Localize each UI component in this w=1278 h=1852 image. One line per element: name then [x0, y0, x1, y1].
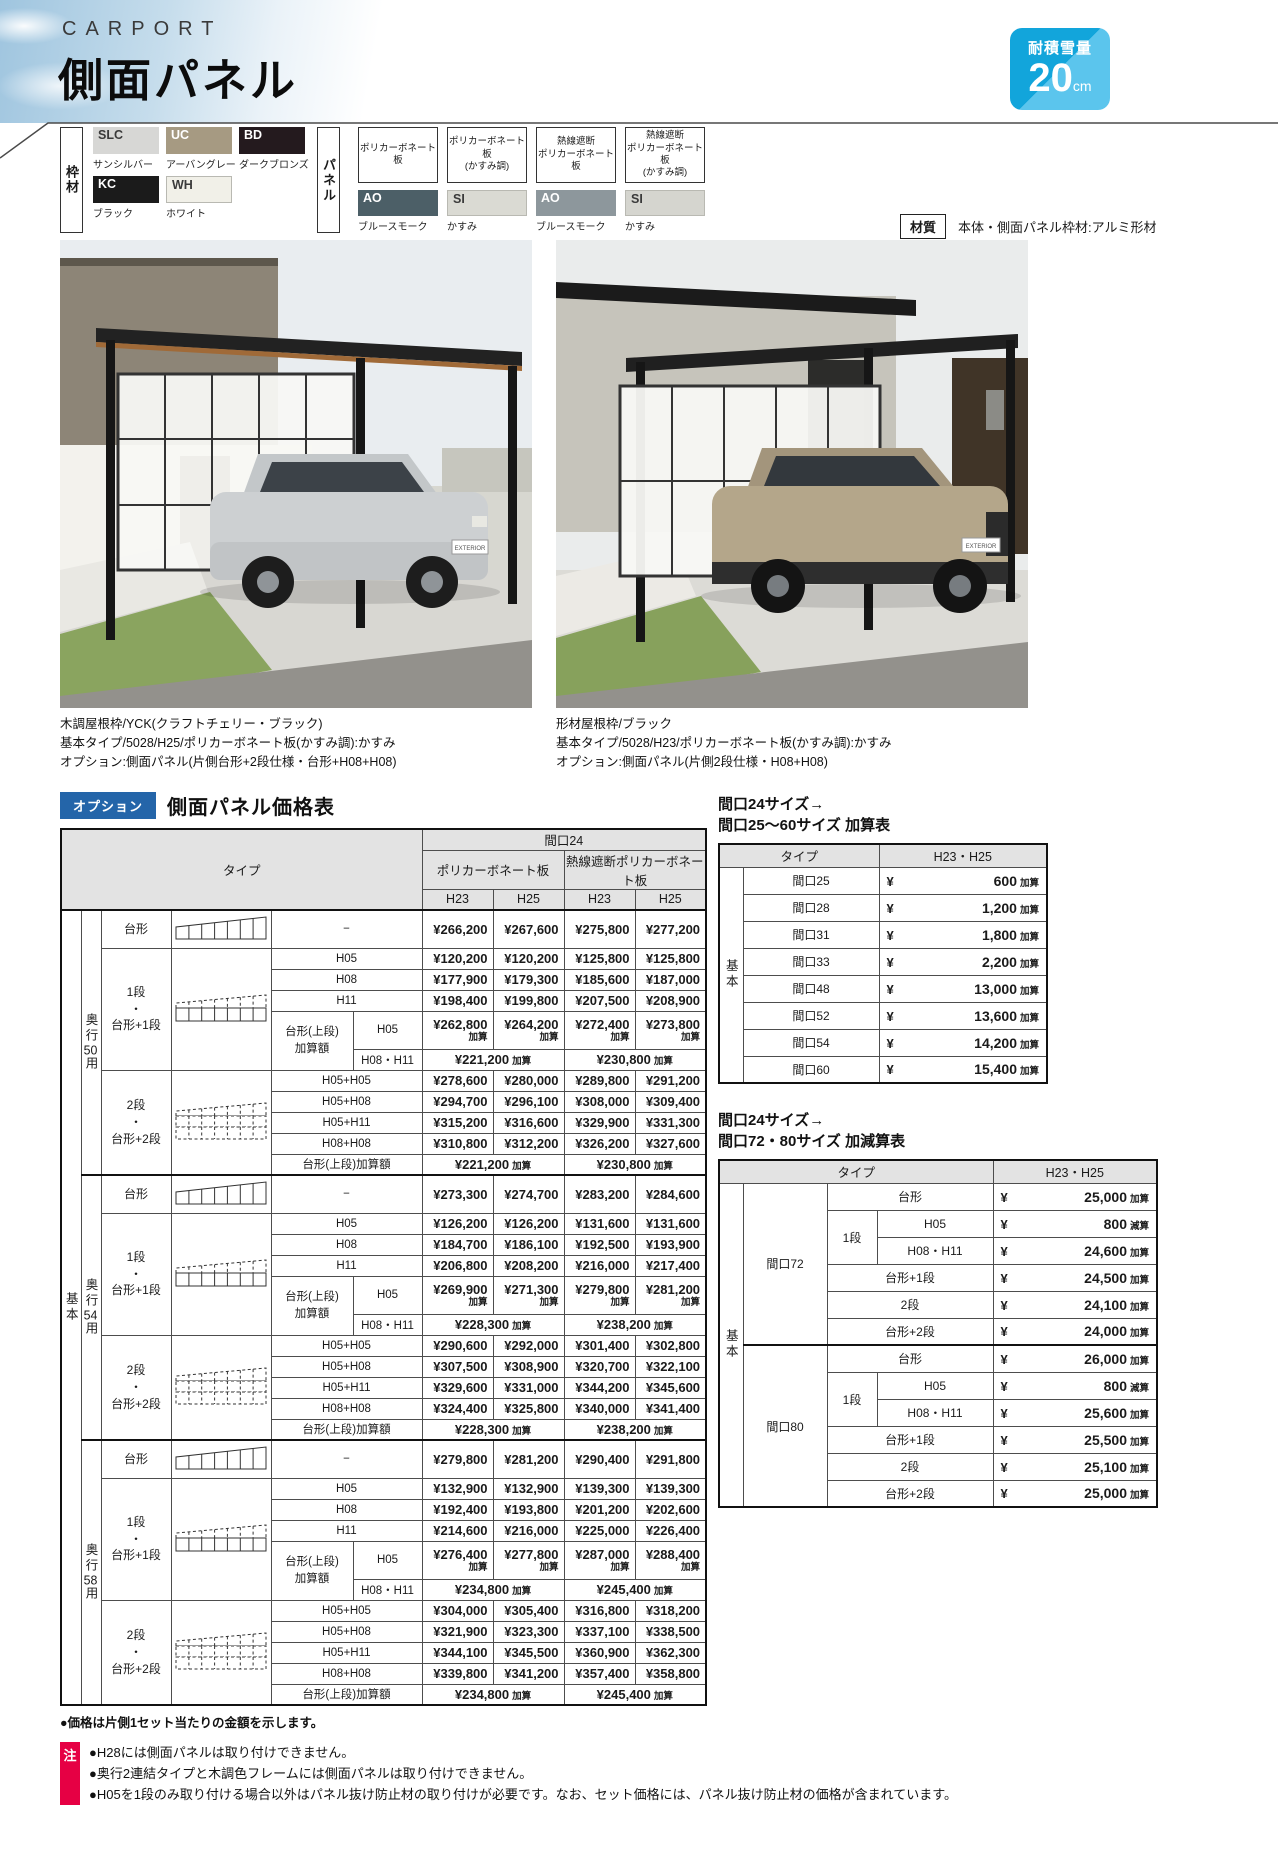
adjust-amount: 1,800: [894, 927, 1017, 943]
width-label: 間口52: [743, 1002, 879, 1029]
price-cell: ¥192,500: [564, 1234, 635, 1255]
price-cell: ¥290,600: [422, 1335, 493, 1356]
price-row: 2段 ・ 台形+2段H05+H05¥304,000¥305,400¥316,80…: [61, 1600, 706, 1621]
price-cell: ¥225,000: [564, 1520, 635, 1541]
price-cell: ¥338,500: [635, 1621, 706, 1642]
width-span-label: 間口72: [743, 1183, 827, 1345]
frame-swatch: SLCサンシルバー: [93, 127, 159, 171]
adjust-value-inner: ¥1,800加算: [887, 927, 1040, 943]
add-suffix: 加算: [636, 1563, 701, 1573]
price-cell: ¥186,100: [493, 1234, 564, 1255]
adjust-value: ¥14,200加算: [879, 1029, 1047, 1056]
swatch-name: アーバングレー: [166, 156, 232, 171]
swatch-name: ダークブロンズ: [239, 156, 305, 171]
adjust-value-inner: ¥13,000加算: [887, 981, 1040, 997]
price-cell: ¥120,200: [493, 948, 564, 969]
price-cell: ¥327,600: [635, 1133, 706, 1154]
panel-diagram-dan2-icon: [175, 1364, 267, 1406]
adjust-value: ¥15,400加算: [879, 1056, 1047, 1083]
height-label: H08・H11: [877, 1237, 993, 1264]
price-cell: ¥179,300: [493, 969, 564, 990]
height-spec-label: H05: [271, 1478, 422, 1499]
adjust-value: ¥25,500加算: [993, 1426, 1157, 1453]
vertical-label: 奥行50用: [81, 910, 101, 1175]
step-label: 1段: [827, 1372, 877, 1426]
yen-symbol: ¥: [1001, 1379, 1008, 1394]
height-spec-label: H05+H05: [271, 1600, 422, 1621]
adjust-value-inner: ¥25,000加算: [1001, 1485, 1150, 1501]
adjust-suffix: 減算: [1130, 1380, 1149, 1394]
yen-symbol: ¥: [1001, 1298, 1008, 1313]
adjust-suffix: 加算: [1130, 1272, 1149, 1286]
price-cell: ¥288,400加算: [635, 1541, 706, 1579]
height-spec-label: H11: [271, 1255, 422, 1276]
price-cell: ¥318,200: [635, 1600, 706, 1621]
type-label: 2段 ・ 台形+2段: [101, 1335, 171, 1440]
price-value: ¥262,800: [423, 1017, 488, 1033]
adjust-amount: 1,200: [894, 900, 1017, 916]
adjust-value-inner: ¥24,000加算: [1001, 1323, 1150, 1339]
panel-diagram-taikei-icon: [175, 914, 267, 940]
caption-line: オプション:側面パネル(片側2段仕様・H08+H08): [556, 753, 1028, 772]
height-spec-label: −: [271, 1440, 422, 1478]
panel-diagram-dan1-icon: [175, 991, 267, 1023]
frame-swatch: KCブラック: [93, 176, 159, 220]
price-cell: ¥217,400: [635, 1255, 706, 1276]
adjust-amount: 26,000: [1008, 1351, 1127, 1367]
color-chip: SI: [625, 190, 705, 216]
adjust-value-inner: ¥25,000加算: [1001, 1189, 1150, 1205]
height-spec-label: −: [271, 1175, 422, 1213]
price-cell: ¥291,800: [635, 1440, 706, 1478]
panel-type: 熱線遮断 ポリカーボネート板AOブルースモーク: [536, 127, 616, 233]
width-label: 間口60: [743, 1056, 879, 1083]
price-cell: ¥132,900: [493, 1478, 564, 1499]
add-suffix: 加算: [512, 1056, 531, 1067]
type-header: タイプ: [719, 1160, 993, 1183]
add-suffix: 加算: [636, 1033, 701, 1043]
adjust-value: ¥24,500加算: [993, 1264, 1157, 1291]
side-table-a-body: 基本間口25¥600加算間口28¥1,200加算間口31¥1,800加算間口33…: [719, 867, 1047, 1083]
add-suffix: 加算: [565, 1298, 630, 1308]
height-label: H05: [877, 1372, 993, 1399]
adjust-value-inner: ¥24,600加算: [1001, 1243, 1150, 1259]
category-label: CARPORT: [62, 18, 222, 41]
price-cell: ¥296,100: [493, 1091, 564, 1112]
swatch-name: ホワイト: [166, 205, 232, 220]
vertical-label: 奥行54用: [81, 1175, 101, 1440]
panel-type-label: 熱線遮断 ポリカーボネート板 (かすみ調): [625, 127, 705, 183]
height-label: H05: [877, 1210, 993, 1237]
yen-symbol: ¥: [1001, 1244, 1008, 1259]
adjust-amount: 25,000: [1008, 1485, 1127, 1501]
add-suffix: 加算: [512, 1161, 531, 1172]
adjust-suffix: 加算: [1020, 1063, 1039, 1077]
height-spec-label: 台形(上段)加算額: [271, 1419, 422, 1440]
price-cell: ¥279,800加算: [564, 1276, 635, 1314]
yen-symbol: ¥: [887, 1036, 894, 1051]
panel-type-label: ポリカーボネート板: [358, 127, 438, 183]
addition-row: 間口31¥1,800加算: [719, 921, 1047, 948]
price-value: ¥288,400: [636, 1547, 701, 1563]
price-cell: ¥269,900加算: [422, 1276, 493, 1314]
width-label: 間口54: [743, 1029, 879, 1056]
height-spec-label: H05: [353, 1541, 422, 1579]
height-spec-label: H05+H11: [271, 1642, 422, 1663]
adjust-amount: 24,000: [1008, 1323, 1127, 1339]
price-value: ¥221,200: [455, 1157, 509, 1172]
height-col-header: H23: [564, 889, 635, 910]
price-cell: ¥184,700: [422, 1234, 493, 1255]
adjust-value: ¥1,200加算: [879, 894, 1047, 921]
height-spec-label: H05+H08: [271, 1091, 422, 1112]
vertical-label: 奥行58用: [81, 1440, 101, 1705]
price-row: 2段 ・ 台形+2段H05+H05¥290,600¥292,000¥301,40…: [61, 1335, 706, 1356]
addition-row: 間口54¥14,200加算: [719, 1029, 1047, 1056]
add-amount-label: 台形(上段) 加算額: [271, 1276, 353, 1335]
add-amount-label: 台形(上段) 加算額: [271, 1011, 353, 1070]
type-label: 台形: [101, 1440, 171, 1478]
adjust-value: ¥13,000加算: [879, 975, 1047, 1002]
price-table-titlebar: オプション 側面パネル価格表: [60, 791, 335, 820]
height-spec-label: H05: [353, 1276, 422, 1314]
price-cell: ¥199,800: [493, 990, 564, 1011]
adjust-value-inner: ¥25,500加算: [1001, 1432, 1150, 1448]
price-cell: ¥126,200: [493, 1213, 564, 1234]
frame-swatches: SLCサンシルバーUCアーバングレーBDダークブロンズKCブラックWHホワイト: [93, 127, 307, 233]
adjust-suffix: 加算: [1130, 1325, 1149, 1339]
price-cell-merged: ¥234,800加算: [422, 1684, 564, 1705]
price-cell: ¥277,200: [635, 910, 706, 948]
add-suffix: 加算: [512, 1691, 531, 1702]
title-line: 間口72・80サイズ 加減算表: [718, 1131, 1178, 1152]
color-chip: SI: [447, 190, 527, 216]
price-cell: ¥280,000: [493, 1070, 564, 1091]
carport-photo-left: EXTERIOR: [60, 240, 532, 708]
price-value: ¥287,000: [565, 1547, 630, 1563]
price-cell: ¥304,000: [422, 1600, 493, 1621]
height-spec-label: H08: [271, 1234, 422, 1255]
price-cell: ¥216,000: [493, 1520, 564, 1541]
adjust-value-inner: ¥14,200加算: [887, 1035, 1040, 1051]
panel-diagram: [171, 1070, 271, 1175]
adjust-value: ¥25,100加算: [993, 1453, 1157, 1480]
price-cell: ¥274,700: [493, 1175, 564, 1213]
caption-line: 木調屋根枠/YCK(クラフトチェリー・ブラック): [60, 715, 532, 734]
price-cell-merged: ¥230,800加算: [564, 1154, 706, 1175]
adjust-suffix: 加算: [1020, 983, 1039, 997]
width-adjustment-table: タイプ H23・H25 基本間口72台形¥25,000加算1段H05¥800減算…: [718, 1159, 1158, 1508]
height-spec-label: −: [271, 910, 422, 948]
adjust-amount: 25,500: [1008, 1432, 1127, 1448]
price-row: 1段 ・ 台形+1段H05¥126,200¥126,200¥131,600¥13…: [61, 1213, 706, 1234]
panel-diagram: [171, 1175, 271, 1213]
price-cell: ¥276,400加算: [422, 1541, 493, 1579]
price-value: ¥230,800: [597, 1052, 651, 1067]
color-chip: AO: [358, 190, 438, 216]
frame-material-label: 枠材: [60, 127, 83, 233]
add-suffix: 加算: [512, 1321, 531, 1332]
height-spec-label: H05: [271, 1213, 422, 1234]
caption-line: オプション:側面パネル(片側台形+2段仕様・台形+H08+H08): [60, 753, 532, 772]
adjust-row: 基本間口72台形¥25,000加算: [719, 1183, 1157, 1210]
price-cell-merged: ¥221,200加算: [422, 1049, 564, 1070]
price-cell: ¥226,400: [635, 1520, 706, 1541]
color-chip: BD: [239, 127, 305, 154]
price-value: ¥228,300: [455, 1317, 509, 1332]
price-cell: ¥139,300: [564, 1478, 635, 1499]
price-cell: ¥192,400: [422, 1499, 493, 1520]
adjust-suffix: 加算: [1020, 1010, 1039, 1024]
addition-row: 間口48¥13,000加算: [719, 975, 1047, 1002]
side-table-b-body: 基本間口72台形¥25,000加算1段H05¥800減算H08・H11¥24,6…: [719, 1183, 1157, 1507]
price-cell-merged: ¥234,800加算: [422, 1579, 564, 1600]
adjust-amount: 25,100: [1008, 1459, 1127, 1475]
price-cell: ¥302,800: [635, 1335, 706, 1356]
type-label: 台形: [101, 910, 171, 948]
price-cell: ¥266,200: [422, 910, 493, 948]
vertical-label: 基本: [719, 867, 743, 1083]
width-addition-table: タイプ H23・H25 基本間口25¥600加算間口28¥1,200加算間口31…: [718, 843, 1048, 1084]
yen-symbol: ¥: [1001, 1324, 1008, 1339]
price-cell: ¥177,900: [422, 969, 493, 990]
add-suffix: 加算: [423, 1563, 488, 1573]
price-value: ¥281,200: [636, 1282, 701, 1298]
price-value: ¥272,400: [565, 1017, 630, 1033]
panel-type: ポリカーボネート板 (かすみ調)SIかすみ: [447, 127, 527, 233]
adjust-suffix: 加算: [1130, 1487, 1149, 1501]
price-cell-merged: ¥245,400加算: [564, 1579, 706, 1600]
adjust-suffix: 減算: [1130, 1218, 1149, 1232]
adjust-suffix: 加算: [1130, 1407, 1149, 1421]
price-row: 1段 ・ 台形+1段H05¥120,200¥120,200¥125,800¥12…: [61, 948, 706, 969]
price-cell: ¥316,600: [493, 1112, 564, 1133]
adjust-suffix: 加算: [1130, 1191, 1149, 1205]
price-row: 奥行54用台形−¥273,300¥274,700¥283,200¥284,600: [61, 1175, 706, 1213]
panel-config-label: 台形+1段: [827, 1426, 993, 1453]
adjust-value-inner: ¥15,400加算: [887, 1061, 1040, 1077]
add-amount-label: 台形(上段) 加算額: [271, 1541, 353, 1600]
price-value: ¥228,300: [455, 1422, 509, 1437]
price-cell: ¥345,500: [493, 1642, 564, 1663]
adjust-value-inner: ¥24,100加算: [1001, 1297, 1150, 1313]
title-line: 間口24サイズ→: [718, 794, 1178, 815]
panel-diagram: [171, 1600, 271, 1705]
price-cell: ¥198,400: [422, 990, 493, 1011]
type-label: 台形: [101, 1175, 171, 1213]
catalog-page: CARPORT 側面パネル 耐積雪量 20cm 枠材 SLCサンシルバーUCアー…: [0, 0, 1278, 1852]
price-cell: ¥120,200: [422, 948, 493, 969]
price-value: ¥277,800: [494, 1547, 559, 1563]
price-cell: ¥320,700: [564, 1356, 635, 1377]
price-cell: ¥357,400: [564, 1663, 635, 1684]
price-cell-merged: ¥238,200加算: [564, 1314, 706, 1335]
price-cell-merged: ¥228,300加算: [422, 1314, 564, 1335]
height-spec-label: H08: [271, 969, 422, 990]
adjust-suffix: 加算: [1020, 956, 1039, 970]
add-suffix: 加算: [654, 1426, 673, 1437]
photo-caption-left: 木調屋根枠/YCK(クラフトチェリー・ブラック) 基本タイプ/5028/H25/…: [60, 715, 532, 771]
panel-diagram: [171, 1478, 271, 1600]
price-cell: ¥294,700: [422, 1091, 493, 1112]
height-header: H23・H25: [879, 844, 1047, 867]
price-cell: ¥307,500: [422, 1356, 493, 1377]
price-cell: ¥279,800: [422, 1440, 493, 1478]
price-cell: ¥344,200: [564, 1377, 635, 1398]
adjust-amount: 600: [894, 873, 1017, 889]
note-item: ●奥行2連結タイプと木調色フレームには側面パネルは取り付けできません。: [89, 1763, 957, 1784]
price-value: ¥234,800: [455, 1687, 509, 1702]
adjust-value-inner: ¥13,600加算: [887, 1008, 1040, 1024]
panel-swatches: ポリカーボネート板AOブルースモークポリカーボネート板 (かすみ調)SIかすみ熱…: [358, 127, 705, 233]
panel-config-label: 台形: [827, 1183, 993, 1210]
license-plate-text: EXTERIOR: [966, 544, 997, 550]
height-spec-label: H05: [271, 948, 422, 969]
price-value: ¥245,400: [597, 1582, 651, 1597]
height-spec-label: H05: [353, 1011, 422, 1049]
panel-config-label: 2段: [827, 1453, 993, 1480]
price-cell: ¥131,600: [564, 1213, 635, 1234]
price-row: 1段 ・ 台形+1段H05¥132,900¥132,900¥139,300¥13…: [61, 1478, 706, 1499]
price-value: ¥245,400: [597, 1687, 651, 1702]
price-cell: ¥325,800: [493, 1398, 564, 1419]
height-spec-label: H08: [271, 1499, 422, 1520]
add-suffix: 加算: [565, 1033, 630, 1043]
adjust-suffix: 加算: [1130, 1434, 1149, 1448]
snow-load-badge: 耐積雪量 20cm: [1010, 28, 1110, 110]
adjust-value-inner: ¥25,100加算: [1001, 1459, 1150, 1475]
add-suffix: 加算: [654, 1586, 673, 1597]
material-spec-label: 材質: [900, 214, 946, 239]
panel-type-label: ポリカーボネート板 (かすみ調): [447, 127, 527, 183]
height-spec-label: H08+H08: [271, 1133, 422, 1154]
yen-symbol: ¥: [887, 928, 894, 943]
price-cell: ¥316,800: [564, 1600, 635, 1621]
adjust-amount: 800: [1008, 1216, 1127, 1232]
price-cell: ¥214,600: [422, 1520, 493, 1541]
price-cell: ¥326,200: [564, 1133, 635, 1154]
side-table-a-title: 間口24サイズ→ 間口25〜60サイズ 加算表: [718, 794, 1178, 836]
panel-diagram-taikei-icon: [175, 1179, 267, 1205]
height-spec-label: H08・H11: [353, 1314, 422, 1335]
price-value: ¥238,200: [597, 1317, 651, 1332]
panel-diagram: [171, 948, 271, 1070]
price-cell: ¥208,200: [493, 1255, 564, 1276]
addition-row: 間口33¥2,200加算: [719, 948, 1047, 975]
yen-symbol: ¥: [1001, 1486, 1008, 1501]
price-cell-merged: ¥228,300加算: [422, 1419, 564, 1440]
panel-config-label: 台形: [827, 1345, 993, 1372]
yen-symbol: ¥: [887, 1009, 894, 1024]
price-cell: ¥185,600: [564, 969, 635, 990]
height-header: H23・H25: [993, 1160, 1157, 1183]
addition-row: 間口60¥15,400加算: [719, 1056, 1047, 1083]
price-cell: ¥267,600: [493, 910, 564, 948]
add-suffix: 加算: [512, 1426, 531, 1437]
price-cell-merged: ¥221,200加算: [422, 1154, 564, 1175]
snow-badge-value: 20: [1028, 56, 1073, 100]
type-header: タイプ: [719, 844, 879, 867]
price-cell: ¥284,600: [635, 1175, 706, 1213]
width-label: 間口33: [743, 948, 879, 975]
price-cell: ¥125,800: [564, 948, 635, 969]
price-cell: ¥193,900: [635, 1234, 706, 1255]
adjust-value: ¥2,200加算: [879, 948, 1047, 975]
panel-diagram: [171, 910, 271, 948]
price-cell: ¥201,200: [564, 1499, 635, 1520]
price-cell: ¥341,200: [493, 1663, 564, 1684]
price-cell: ¥273,300: [422, 1175, 493, 1213]
price-cell: ¥264,200加算: [493, 1011, 564, 1049]
type-label: 1段 ・ 台形+1段: [101, 1478, 171, 1600]
price-cell: ¥281,200加算: [635, 1276, 706, 1314]
caption-line: 形材屋根枠/ブラック: [556, 715, 1028, 734]
height-col-header: H25: [493, 889, 564, 910]
panel-diagram-dan2-icon: [175, 1099, 267, 1141]
price-cell: ¥358,800: [635, 1663, 706, 1684]
price-value: ¥273,800: [636, 1017, 701, 1033]
adjust-value-inner: ¥26,000加算: [1001, 1351, 1150, 1367]
carport-photo-right: EXTERIOR: [556, 240, 1028, 708]
price-cell-merged: ¥230,800加算: [564, 1049, 706, 1070]
price-cell: ¥329,600: [422, 1377, 493, 1398]
yen-symbol: ¥: [887, 982, 894, 997]
adjust-value: ¥1,800加算: [879, 921, 1047, 948]
price-cell: ¥290,400: [564, 1440, 635, 1478]
price-cell: ¥207,500: [564, 990, 635, 1011]
price-cell: ¥202,600: [635, 1499, 706, 1520]
title-line: 間口24サイズ→: [718, 1110, 1178, 1131]
yen-symbol: ¥: [1001, 1352, 1008, 1367]
price-cell: ¥340,000: [564, 1398, 635, 1419]
price-cell: ¥308,000: [564, 1091, 635, 1112]
price-cell: ¥287,000加算: [564, 1541, 635, 1579]
adjust-suffix: 加算: [1020, 929, 1039, 943]
price-cell: ¥273,800加算: [635, 1011, 706, 1049]
adjust-value-inner: ¥2,200加算: [887, 954, 1040, 970]
price-cell: ¥281,200: [493, 1440, 564, 1478]
price-value: ¥276,400: [423, 1547, 488, 1563]
panel-config-label: 台形+1段: [827, 1264, 993, 1291]
price-cell: ¥310,800: [422, 1133, 493, 1154]
price-cell: ¥139,300: [635, 1478, 706, 1499]
color-chip: UC: [166, 127, 232, 154]
panel-group-header-poly: ポリカーボネート板: [422, 850, 564, 889]
adjust-amount: 14,200: [894, 1035, 1017, 1051]
adjust-value-inner: ¥25,600加算: [1001, 1405, 1150, 1421]
license-plate-text: EXTERIOR: [455, 546, 486, 552]
swatch-name: かすみ: [625, 218, 705, 233]
price-value: ¥271,300: [494, 1282, 559, 1298]
height-spec-label: H08・H11: [353, 1049, 422, 1070]
height-col-header: H25: [635, 889, 706, 910]
price-cell: ¥308,900: [493, 1356, 564, 1377]
height-spec-label: H05+H11: [271, 1377, 422, 1398]
adjust-value: ¥24,000加算: [993, 1318, 1157, 1345]
photo-caption-right: 形材屋根枠/ブラック 基本タイプ/5028/H23/ポリカーボネート板(かすみ調…: [556, 715, 1028, 771]
add-suffix: 加算: [512, 1586, 531, 1597]
price-value: ¥230,800: [597, 1157, 651, 1172]
price-cell: ¥312,200: [493, 1133, 564, 1154]
panel-diagram-dan2-icon: [175, 1629, 267, 1671]
adjust-value: ¥13,600加算: [879, 1002, 1047, 1029]
adjust-row: 間口80台形¥26,000加算: [719, 1345, 1157, 1372]
panel-type: 熱線遮断 ポリカーボネート板 (かすみ調)SIかすみ: [625, 127, 705, 233]
color-chip: AO: [536, 190, 616, 216]
yen-symbol: ¥: [887, 874, 894, 889]
type-label: 1段 ・ 台形+1段: [101, 1213, 171, 1335]
caption-line: 基本タイプ/5028/H25/ポリカーボネート板(かすみ調):かすみ: [60, 734, 532, 753]
